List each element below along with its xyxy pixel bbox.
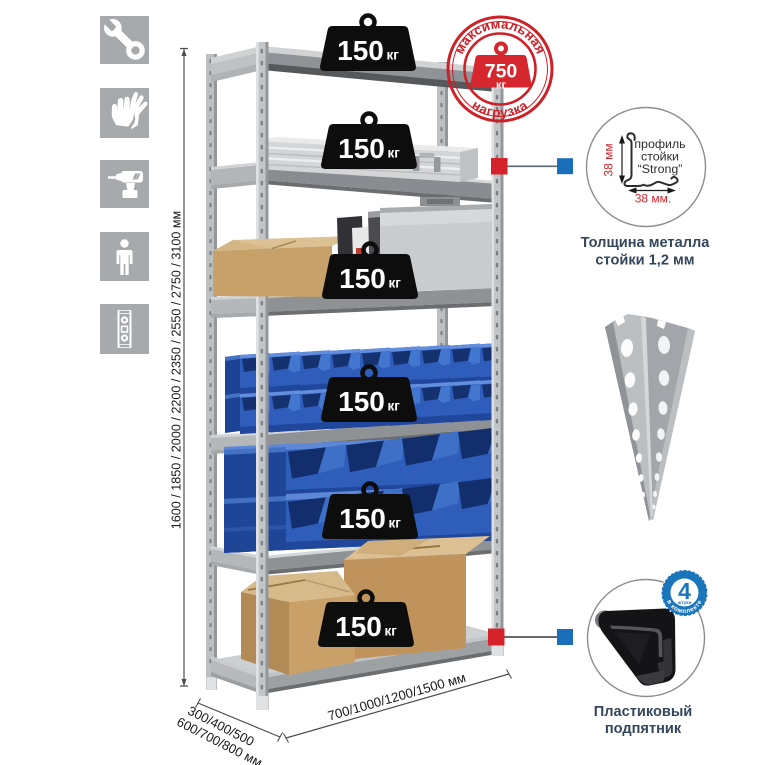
svg-text:Толщина металла: Толщина металла (581, 235, 711, 251)
svg-text:38 мм.: 38 мм. (635, 192, 672, 206)
svg-text:подпятник: подпятник (605, 721, 682, 737)
svg-text:38 мм: 38 мм (602, 143, 616, 176)
svg-text:кг: кг (496, 80, 507, 92)
svg-text:стойки 1,2 мм: стойки 1,2 мм (595, 253, 694, 269)
svg-text:“Strong”: “Strong” (638, 162, 683, 176)
svg-text:Пластиковый: Пластиковый (594, 704, 693, 720)
svg-text:штуки: штуки (678, 600, 692, 605)
svg-text:1600 / 1850 / 2000 / 2200 / 23: 1600 / 1850 / 2000 / 2200 / 2350 / 2550 … (170, 211, 184, 529)
svg-text:максимальная: максимальная (452, 16, 549, 56)
